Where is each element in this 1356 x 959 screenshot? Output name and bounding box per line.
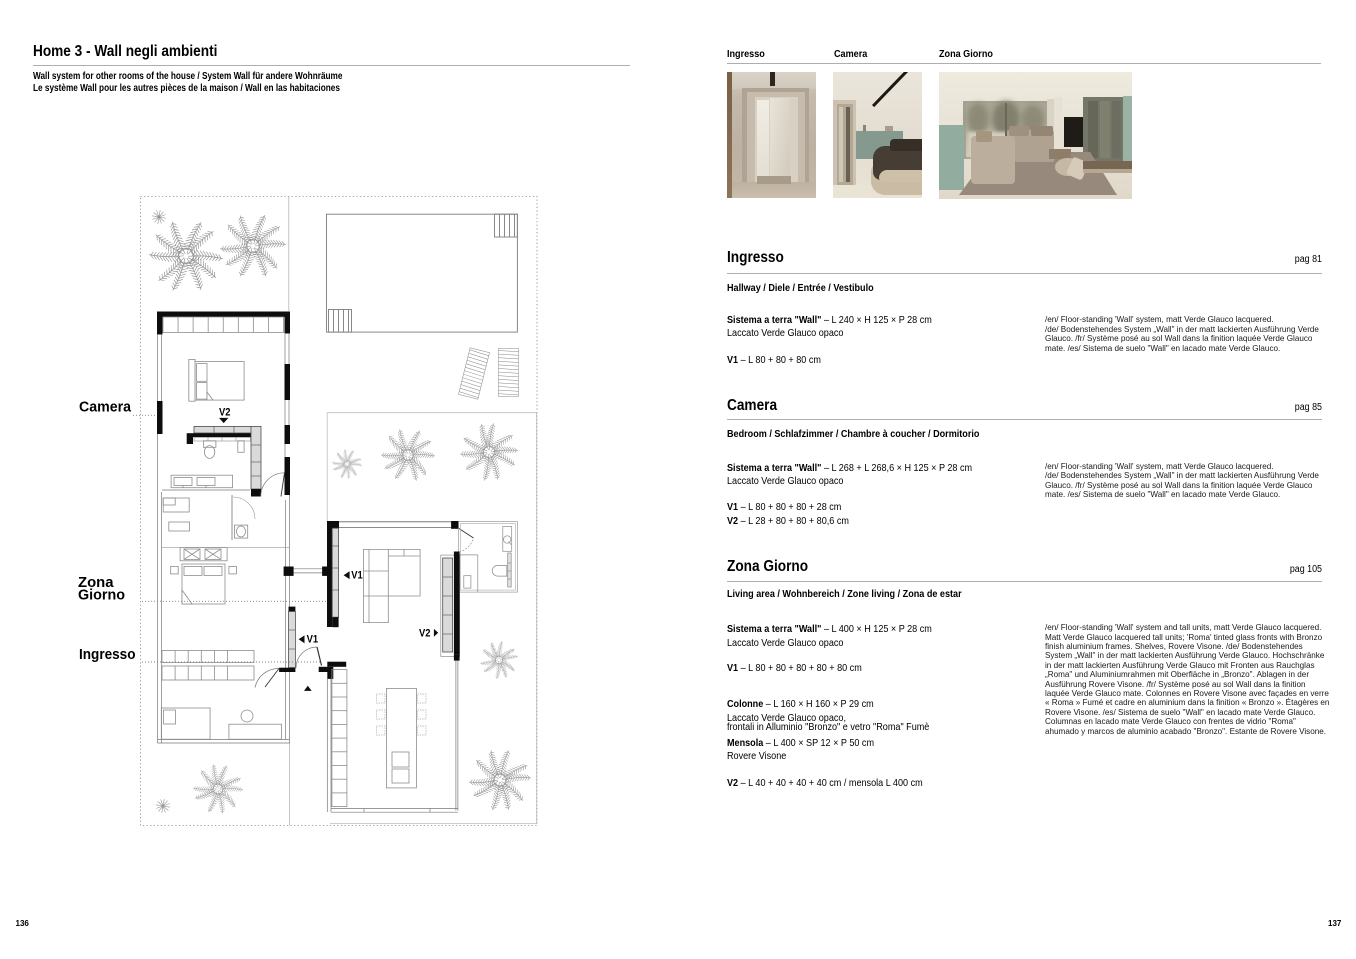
svg-text:V1: V1 (307, 634, 319, 646)
svg-text:V2: V2 (219, 407, 231, 419)
svg-text:Camera: Camera (79, 400, 132, 416)
svg-text:V2: V2 (419, 627, 431, 639)
svg-text:V1: V1 (351, 570, 363, 582)
svg-text:Giorno: Giorno (78, 587, 125, 603)
svg-text:Ingresso: Ingresso (79, 647, 136, 663)
